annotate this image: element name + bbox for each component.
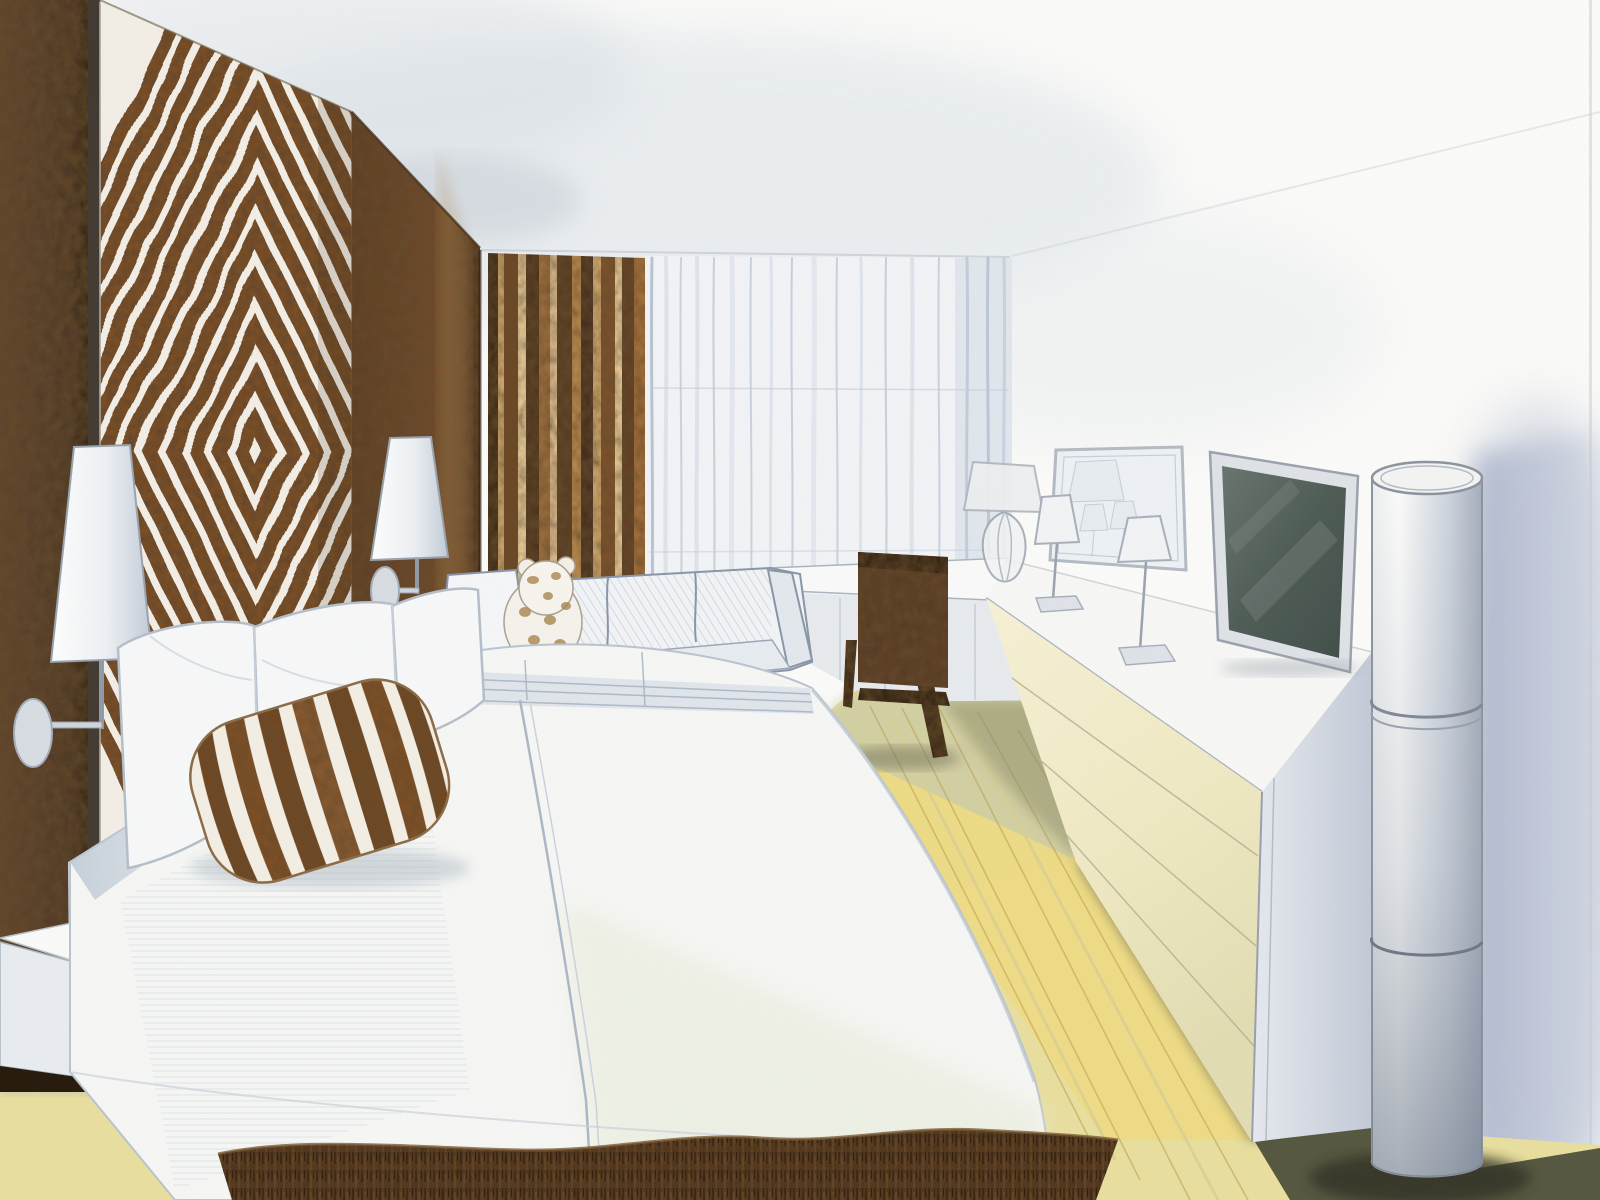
paper-grain xyxy=(0,0,1600,1200)
sketch-image xyxy=(0,0,1600,1200)
